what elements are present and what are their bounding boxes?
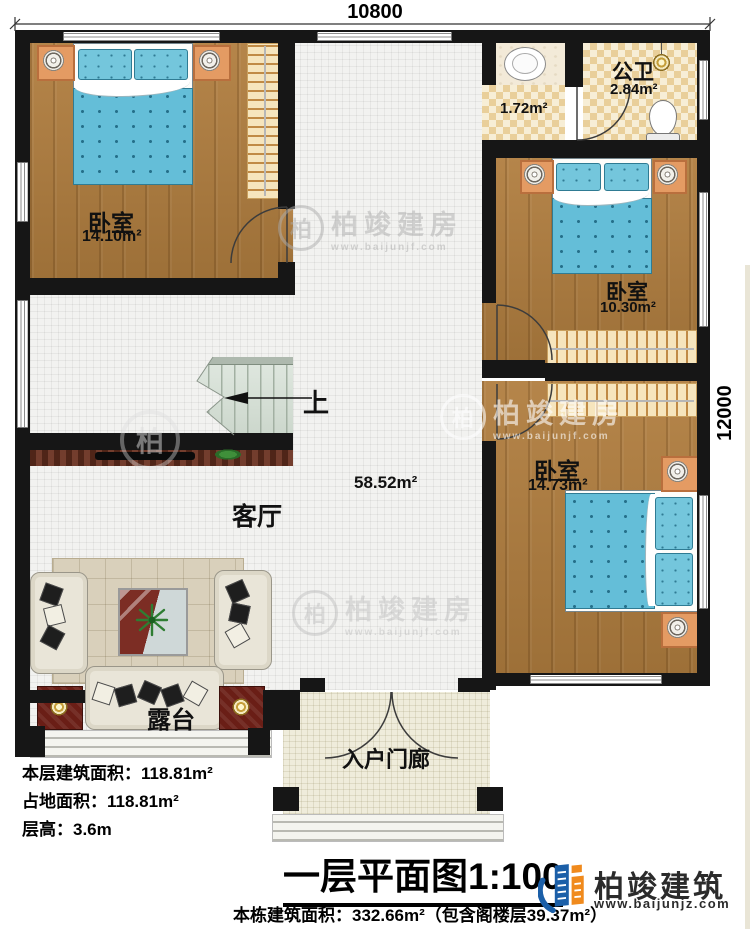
- living-room-area: 58.52m²: [354, 473, 417, 493]
- watermark: 柏 柏竣建房 www.baijunjf.com: [440, 392, 625, 442]
- watermark-badge-icon: 柏: [120, 410, 180, 470]
- watermark-url: www.baijunjf.com: [493, 431, 625, 442]
- watermark-brand: 柏竣建房: [331, 203, 463, 242]
- watermark-url: www.baijunjf.com: [345, 627, 477, 638]
- washroom-area: 1.72m²: [500, 100, 548, 117]
- living-room-label: 客厅: [232, 497, 282, 533]
- stairs-up-label: 上: [303, 383, 329, 420]
- dimension-width: 10800: [300, 1, 450, 24]
- bedroom-top-left-area: 14.10m²: [82, 228, 142, 246]
- stair-direction-arrow: [224, 392, 248, 404]
- floor-plan-page: 卧室 14.10m² 1.72m² 公卫 2.84m² 卧室 10.30m² 卧…: [0, 0, 750, 929]
- watermark: 柏 柏竣建房 www.baijunjf.com: [278, 203, 463, 253]
- porch-label: 入户门廊: [342, 742, 430, 774]
- bathroom-area: 2.84m²: [610, 81, 658, 98]
- info-block: 本层建筑面积：118.81m² 占地面积：118.81m² 层高：3.6m: [22, 760, 213, 844]
- plan-title: 一层平面图1:100: [283, 846, 563, 907]
- info-floor-area: 本层建筑面积：118.81m²: [22, 760, 213, 788]
- watermark-brand: 柏竣建房: [345, 588, 477, 627]
- bedroom-mid-right-area: 10.30m²: [600, 299, 656, 316]
- watermark-badge-icon: 柏: [440, 394, 486, 440]
- bedroom-bottom-right-area: 14.73m²: [528, 477, 588, 495]
- brand-url: www.baijunjz.com: [594, 896, 730, 911]
- info-floor-height: 层高：3.6m: [22, 816, 213, 844]
- watermark-brand: 柏竣建房: [493, 392, 625, 431]
- watermark-badge-icon: 柏: [292, 590, 338, 636]
- watermark-url: www.baijunjf.com: [331, 242, 463, 253]
- info-footprint-area: 占地面积：118.81m²: [22, 788, 213, 816]
- watermark-badge-icon: 柏: [278, 205, 324, 251]
- dimension-height: 12000: [714, 373, 736, 453]
- page-edge-strip: [745, 265, 750, 929]
- watermark: 柏 柏竣建房 www.baijunjf.com: [292, 588, 477, 638]
- brand-logo-icon: [538, 858, 594, 914]
- terrace-label: 露台: [147, 700, 195, 735]
